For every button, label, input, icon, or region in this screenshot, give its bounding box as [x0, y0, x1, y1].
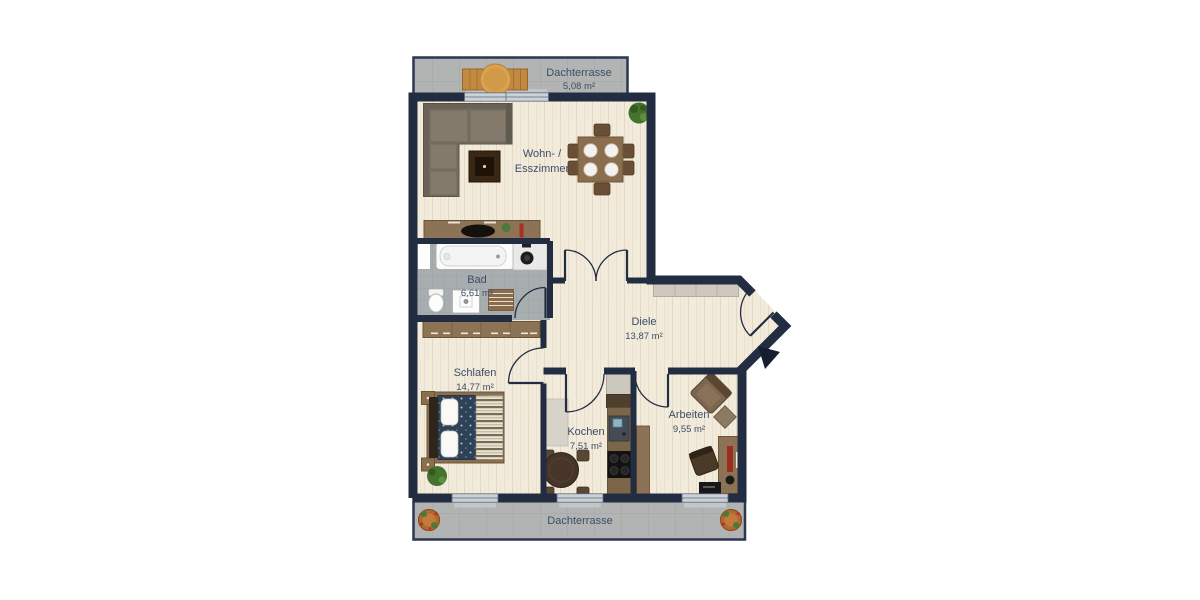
stove: [608, 451, 632, 478]
double-bed: [422, 392, 505, 472]
label-bath-area: 6,61 m²: [461, 288, 493, 299]
bathroom-sink: [513, 243, 547, 271]
potted-plant-left: [419, 510, 440, 531]
label-terrace-top: Dachterrasse: [546, 67, 611, 79]
entrance-arrow-icon: [758, 346, 780, 369]
potted-plant-right: [721, 510, 742, 531]
kitchen-sink: [609, 416, 629, 441]
terrace-door-sill: [559, 503, 601, 508]
window-kitchen: [557, 494, 603, 502]
label-office-area: 9,55 m²: [673, 424, 705, 435]
kitchen-rug: [545, 399, 568, 446]
label-bedroom-area: 14,77 m²: [456, 382, 494, 393]
label-kitchen-area: 7,51 m²: [570, 441, 602, 452]
plant-living: [629, 103, 650, 124]
kitchen-tall-cabinet: [607, 371, 632, 408]
kitchen-counter: [608, 408, 632, 498]
label-terrace-bottom: Dachterrasse: [547, 515, 612, 527]
label-bedroom: Schlafen: [454, 367, 497, 379]
label-bath: Bad: [467, 274, 487, 286]
label-hall-area: 13,87 m²: [625, 331, 663, 342]
pillow: [441, 399, 458, 425]
terrace-door-sill: [454, 503, 496, 508]
terrace-door-sill: [684, 503, 726, 508]
bedroom-wardrobe: [423, 322, 540, 338]
window-living-terrace: [465, 93, 549, 101]
window-office: [682, 494, 728, 502]
floor-plan-page: Dachterrasse 5,08 m² Wohn- / Esszimmer B…: [0, 0, 1200, 600]
plant-bedroom: [427, 466, 447, 486]
bath-niche: [418, 243, 431, 270]
floor-plan: Dachterrasse 5,08 m² Wohn- / Esszimmer B…: [0, 0, 1200, 600]
label-terrace-top-area: 5,08 m²: [563, 81, 595, 92]
window-bedroom: [452, 494, 498, 502]
label-living-2: Esszimmer: [515, 163, 570, 175]
hall-wardrobe: [654, 283, 739, 297]
terrace-round-table: [480, 64, 511, 95]
label-kitchen: Kochen: [567, 426, 604, 438]
printer: [699, 482, 721, 495]
bathtub: [436, 243, 514, 270]
toilet: [429, 289, 444, 312]
label-hall: Diele: [631, 316, 656, 328]
coffee-table: [469, 151, 500, 182]
office-cabinet: [637, 426, 650, 495]
pillow: [441, 431, 458, 457]
label-living-1: Wohn- /: [523, 148, 562, 160]
label-office: Arbeiten: [669, 409, 710, 421]
